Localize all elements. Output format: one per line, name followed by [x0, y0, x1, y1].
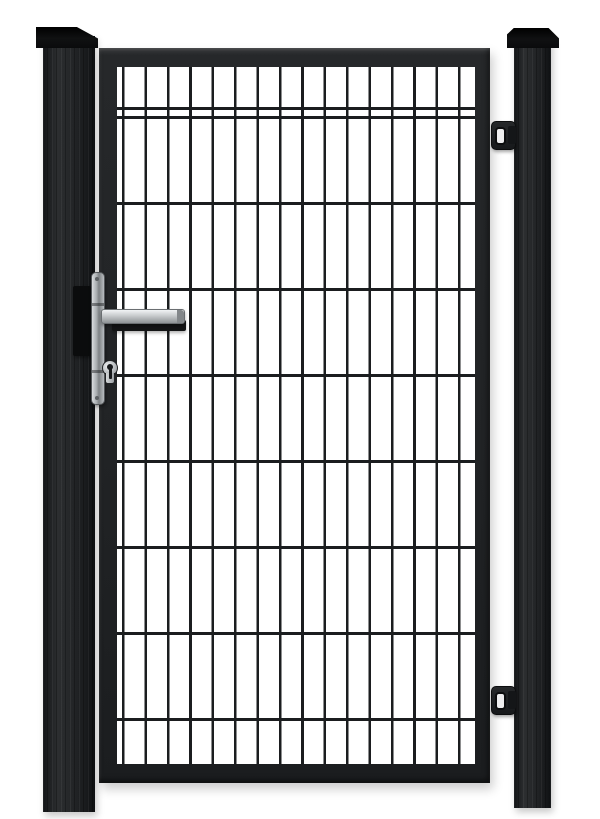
left-post [43, 36, 95, 812]
hinge-bottom-nub [508, 691, 516, 709]
mesh [117, 67, 475, 764]
hinge-top-slot [495, 127, 506, 145]
backplate-screw-bottom [95, 396, 99, 400]
gate-frame [99, 48, 490, 783]
lock-box [73, 286, 91, 356]
hinge-bottom [491, 686, 516, 715]
right-post-cap [507, 28, 559, 48]
lever-handle [101, 309, 185, 324]
handle-backplate [91, 272, 105, 405]
right-post [514, 38, 551, 808]
lever-handle-tip [177, 310, 184, 323]
hinge-top-nub [508, 126, 516, 144]
left-post-cap [36, 27, 98, 48]
lock-cylinder [102, 360, 118, 384]
keyhole-slot [109, 368, 112, 379]
hinge-bottom-slot [495, 692, 506, 710]
gate-product-photo [0, 0, 600, 819]
backplate-screw-top [95, 277, 99, 281]
backplate-notch-upper [92, 303, 104, 306]
hinge-top [491, 121, 516, 150]
